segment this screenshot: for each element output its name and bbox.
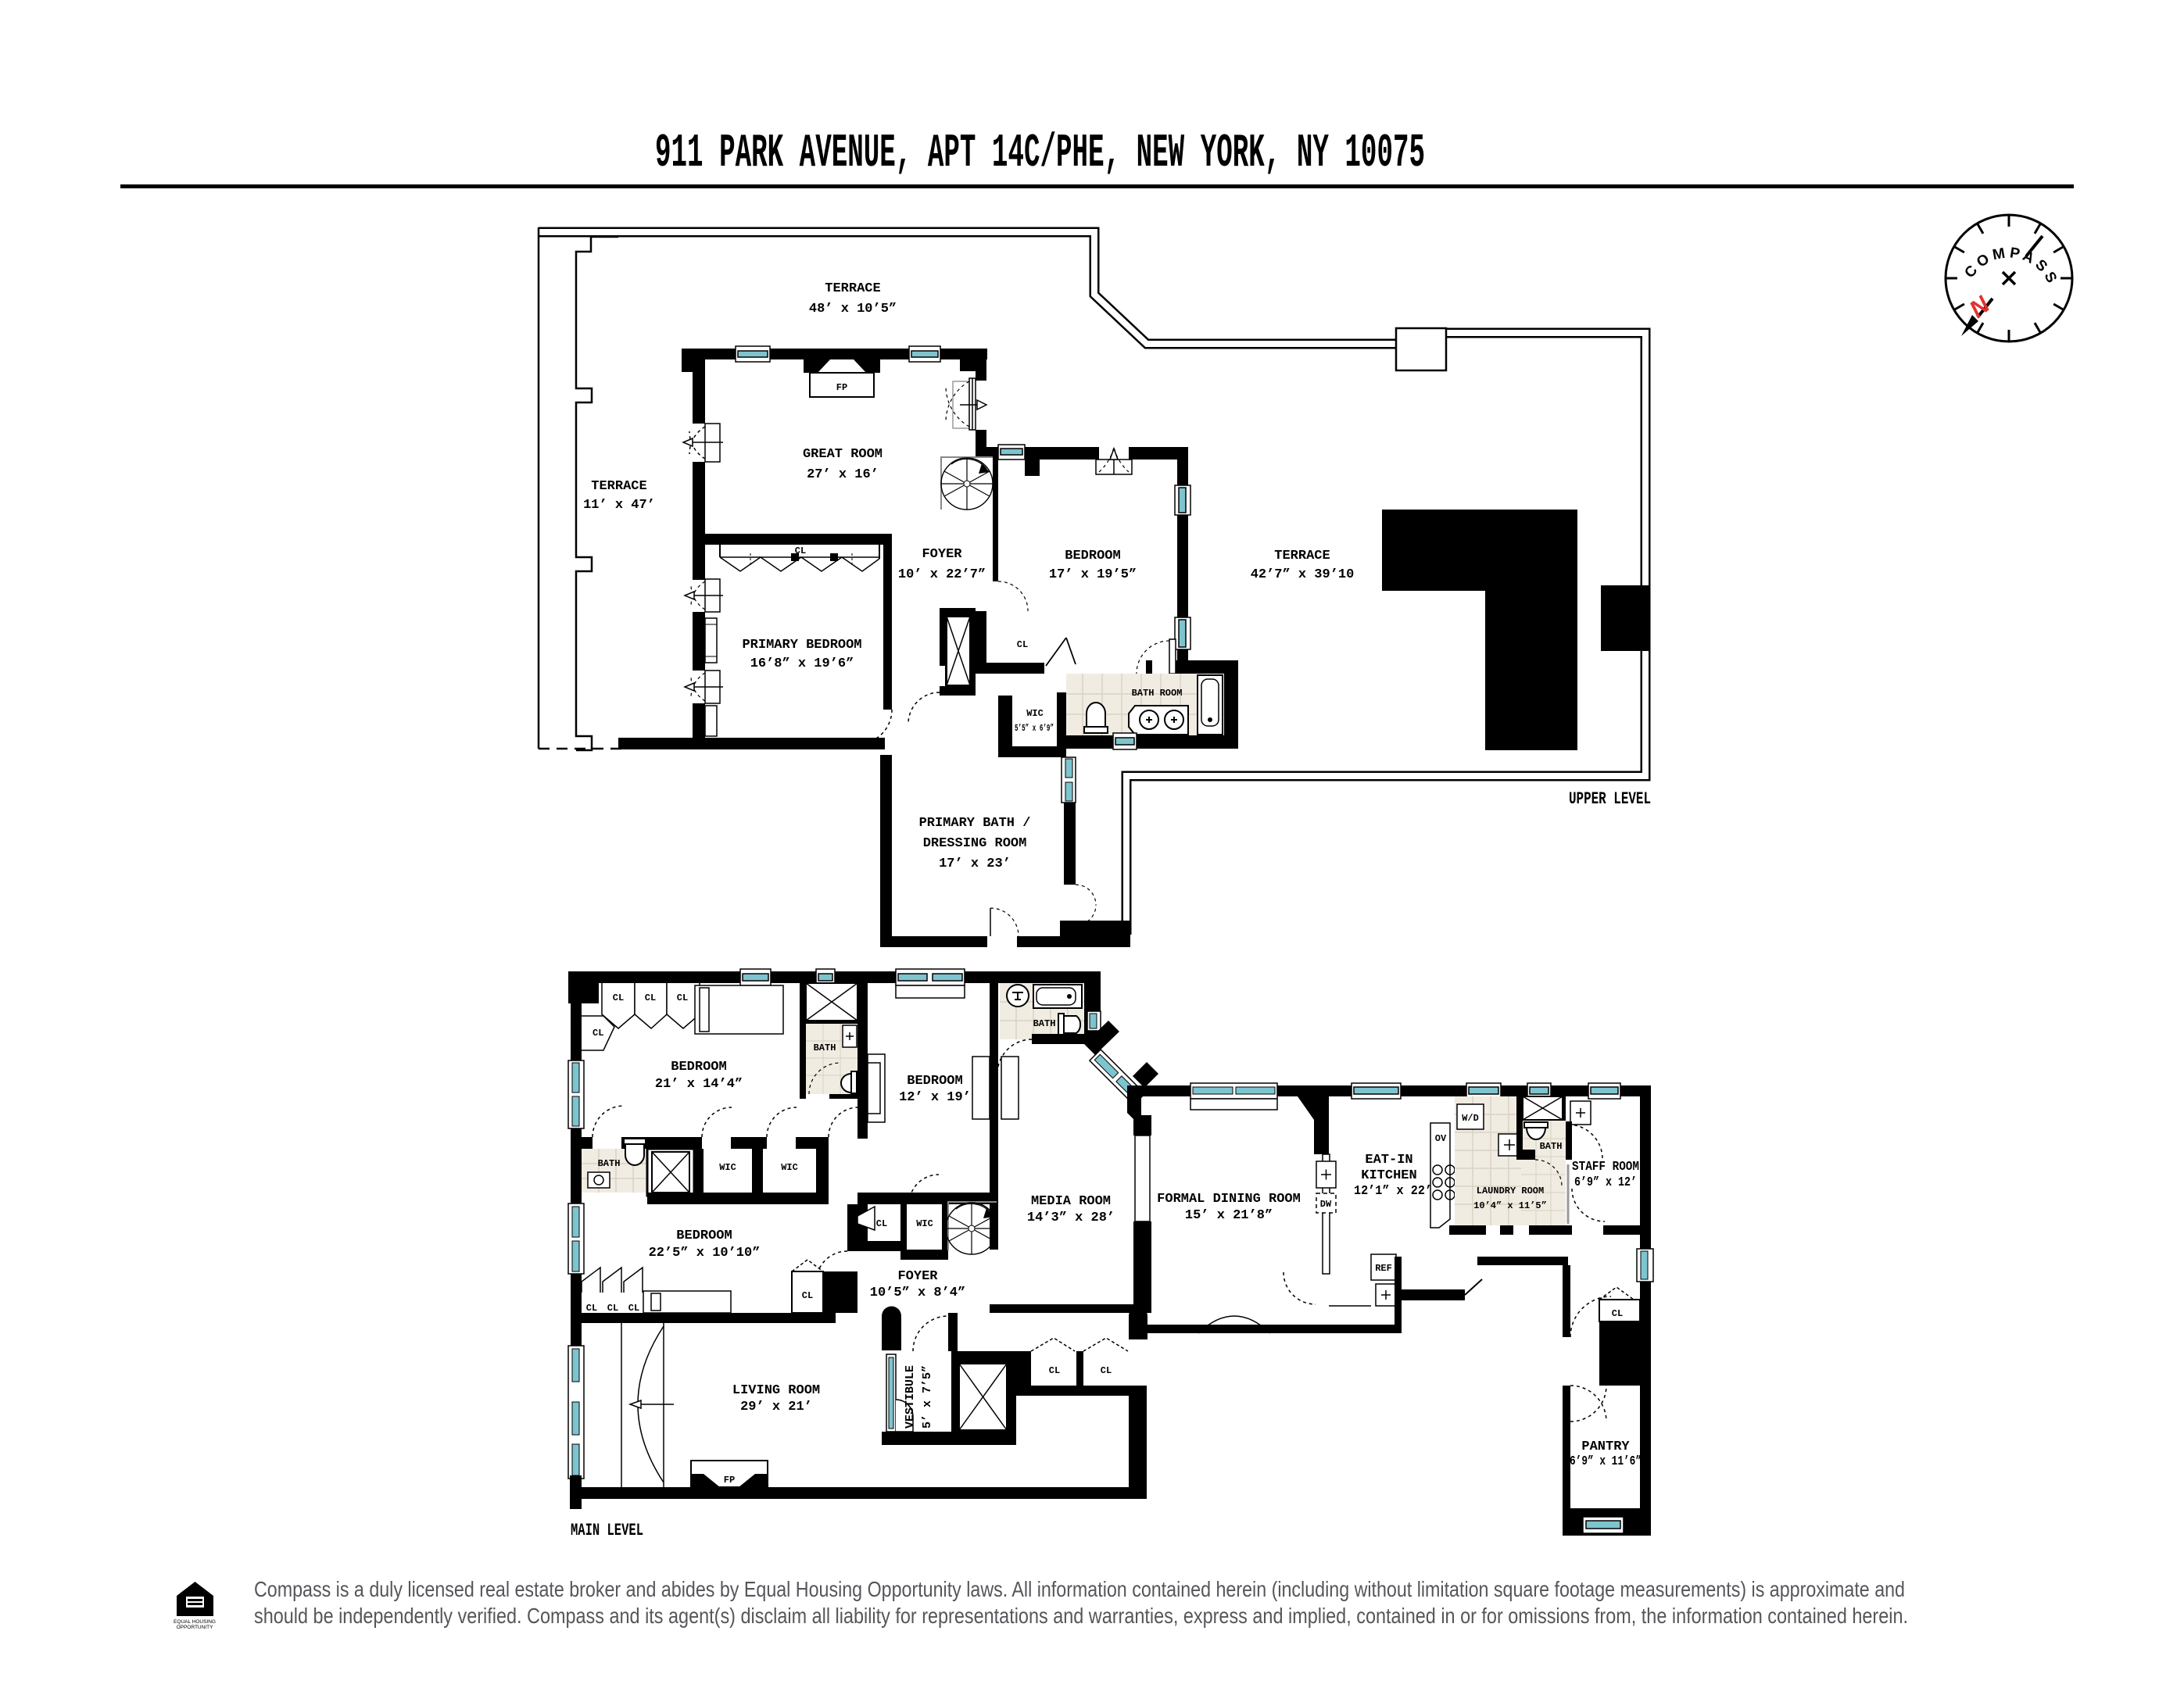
svg-text:REF: REF <box>1375 1263 1392 1274</box>
svg-text:27’ x 16’: 27’ x 16’ <box>807 467 879 482</box>
svg-text:GREAT ROOM: GREAT ROOM <box>803 447 883 462</box>
svg-text:WIC: WIC <box>781 1162 798 1173</box>
svg-text:BEDROOM: BEDROOM <box>907 1074 962 1089</box>
svg-text:10’5” x 8’4”: 10’5” x 8’4” <box>870 1286 965 1300</box>
svg-text:UPPER LEVEL: UPPER LEVEL <box>1569 789 1651 809</box>
svg-text:DW: DW <box>1320 1199 1332 1210</box>
svg-text:CL: CL <box>1101 1365 1112 1376</box>
svg-text:FP: FP <box>836 382 847 393</box>
svg-text:Compass is a duly licensed rea: Compass is a duly licensed real estate b… <box>254 1577 1905 1601</box>
svg-text:BATH ROOM: BATH ROOM <box>1132 688 1183 699</box>
svg-text:CL: CL <box>677 992 688 1003</box>
svg-text:29’ x 21’: 29’ x 21’ <box>740 1400 812 1414</box>
svg-text:CL: CL <box>1049 1365 1060 1376</box>
svg-text:FOYER: FOYER <box>897 1269 938 1284</box>
svg-text:BATH: BATH <box>1033 1018 1056 1029</box>
svg-text:15’ x 21’8”: 15’ x 21’8” <box>1185 1208 1273 1223</box>
svg-text:PANTRY: PANTRY <box>1581 1439 1630 1454</box>
svg-text:EAT-IN: EAT-IN <box>1365 1153 1412 1168</box>
svg-text:6’9” x 12’: 6’9” x 12’ <box>1574 1175 1637 1190</box>
svg-text:6’9” x 11’6”: 6’9” x 11’6” <box>1570 1454 1642 1469</box>
svg-text:12’ x 19’: 12’ x 19’ <box>899 1090 971 1105</box>
svg-text:21’ x 14’4”: 21’ x 14’4” <box>655 1077 743 1092</box>
svg-text:TERRACE: TERRACE <box>1274 549 1330 563</box>
svg-text:PRIMARY BATH /: PRIMARY BATH / <box>919 816 1031 831</box>
svg-text:14’3” x 28’: 14’3” x 28’ <box>1027 1211 1115 1225</box>
svg-text:CL: CL <box>607 1303 618 1314</box>
svg-text:FOYER: FOYER <box>922 547 962 562</box>
svg-text:FP: FP <box>724 1475 735 1486</box>
svg-text:42’7” x 39’10: 42’7” x 39’10 <box>1251 567 1355 582</box>
svg-text:W/D: W/D <box>1462 1113 1479 1124</box>
svg-text:WIC: WIC <box>916 1218 933 1229</box>
svg-text:STAFF ROOM: STAFF ROOM <box>1572 1160 1639 1175</box>
svg-text:10’ x 22’7”: 10’ x 22’7” <box>898 567 986 582</box>
svg-text:EQUAL HOUSING: EQUAL HOUSING <box>174 1619 216 1625</box>
svg-text:17’ x 23’: 17’ x 23’ <box>939 857 1011 871</box>
svg-text:BATH: BATH <box>598 1158 621 1169</box>
svg-text:FORMAL DINING ROOM: FORMAL DINING ROOM <box>1157 1192 1301 1207</box>
svg-text:TERRACE: TERRACE <box>591 479 646 494</box>
svg-text:48’ x 10’5”: 48’ x 10’5” <box>809 302 897 316</box>
svg-text:OPPORTUNITY: OPPORTUNITY <box>177 1625 213 1630</box>
svg-text:22’5” x 10’10”: 22’5” x 10’10” <box>649 1246 761 1261</box>
svg-text:KITCHEN: KITCHEN <box>1361 1168 1416 1183</box>
svg-text:MAIN LEVEL: MAIN LEVEL <box>571 1521 643 1540</box>
svg-text:PRIMARY BEDROOM: PRIMARY BEDROOM <box>742 638 861 653</box>
svg-text:CL: CL <box>645 992 656 1003</box>
svg-text:BATH: BATH <box>814 1042 836 1053</box>
svg-text:CL: CL <box>593 1028 603 1039</box>
svg-text:CL: CL <box>1612 1308 1623 1319</box>
svg-text:OV: OV <box>1435 1133 1447 1144</box>
svg-text:911 PARK AVENUE, APT 14C/PHE,: 911 PARK AVENUE, APT 14C/PHE, NEW YORK, … <box>655 127 1425 181</box>
svg-text:CL: CL <box>586 1303 597 1314</box>
svg-text:WIC: WIC <box>1026 708 1044 719</box>
svg-text:CL: CL <box>1017 639 1028 650</box>
svg-text:VESTIBULE: VESTIBULE <box>904 1365 917 1429</box>
svg-text:CL: CL <box>613 992 624 1003</box>
svg-text:BEDROOM: BEDROOM <box>1065 549 1120 563</box>
svg-text:16’8” x 19’6”: 16’8” x 19’6” <box>750 656 854 671</box>
svg-text:17’ x 19’5”: 17’ x 19’5” <box>1049 567 1137 582</box>
svg-text:12’1” x 22’: 12’1” x 22’ <box>1354 1184 1432 1199</box>
svg-text:BATH: BATH <box>1540 1141 1563 1152</box>
svg-text:BEDROOM: BEDROOM <box>676 1228 732 1243</box>
svg-text:10’4” x 11’5”: 10’4” x 11’5” <box>1473 1200 1547 1211</box>
svg-text:CL: CL <box>628 1303 639 1314</box>
svg-text:TERRACE: TERRACE <box>825 281 880 296</box>
svg-text:CL: CL <box>876 1218 887 1229</box>
svg-text:BEDROOM: BEDROOM <box>671 1060 726 1075</box>
svg-text:LAUNDRY ROOM: LAUNDRY ROOM <box>1477 1186 1544 1196</box>
svg-text:should be independently verifi: should be independently verified. Compas… <box>254 1604 1908 1628</box>
svg-text:LIVING ROOM: LIVING ROOM <box>732 1383 820 1398</box>
svg-text:5’ x 7’5”: 5’ x 7’5” <box>921 1365 934 1429</box>
svg-text:5’5” x 6’9”: 5’5” x 6’9” <box>1015 723 1054 734</box>
svg-text:WIC: WIC <box>719 1162 736 1173</box>
svg-text:MEDIA ROOM: MEDIA ROOM <box>1031 1194 1111 1209</box>
svg-text:CL: CL <box>802 1290 813 1301</box>
svg-text:DRESSING ROOM: DRESSING ROOM <box>923 836 1027 851</box>
svg-text:11’ x 47’: 11’ x 47’ <box>583 498 655 513</box>
